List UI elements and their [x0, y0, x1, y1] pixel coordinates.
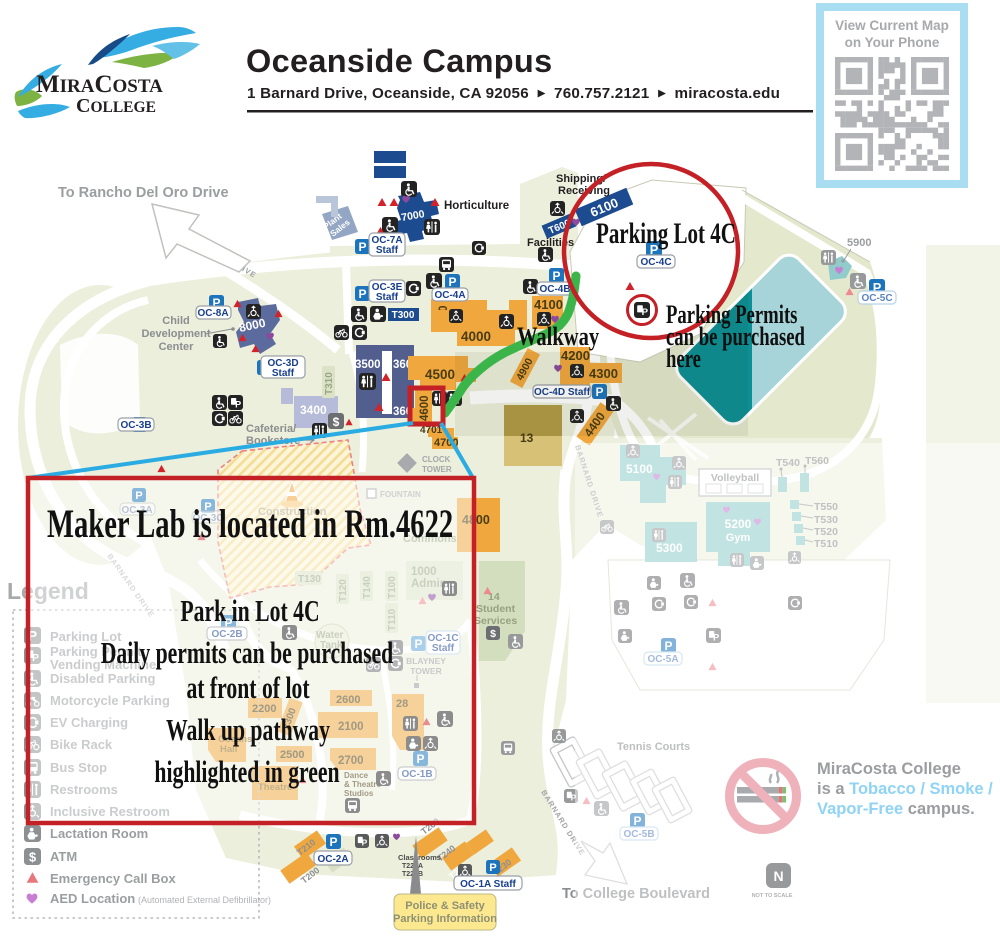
svg-text:5900: 5900 [847, 237, 871, 249]
svg-text:Emergency Call Box: Emergency Call Box [50, 871, 176, 886]
svg-text:(Automated External Defibrilla: (Automated External Defibrillator) [138, 895, 271, 905]
svg-text:OC-5C: OC-5C [861, 293, 892, 304]
svg-text:To Rancho Del Oro Drive: To Rancho Del Oro Drive [58, 185, 229, 201]
svg-text:Park in Lot 4C: Park in Lot 4C [180, 593, 319, 628]
svg-text:3400: 3400 [300, 403, 327, 417]
svg-text:3500: 3500 [355, 359, 381, 371]
svg-text:at front of lot: at front of lot [186, 670, 309, 705]
svg-text:Classrooms: Classrooms [398, 853, 441, 862]
svg-text:Walk up pathway: Walk up pathway [166, 712, 330, 747]
svg-text:is a Tobacco / Smoke /: is a Tobacco / Smoke / [817, 780, 993, 798]
svg-text:MiraCosta College: MiraCosta College [817, 760, 961, 778]
svg-text:Center: Center [159, 341, 195, 353]
svg-text:Horticulture: Horticulture [444, 200, 509, 212]
svg-text:Cafeteria/: Cafeteria/ [246, 423, 296, 435]
svg-text:COLLEGE: COLLEGE [76, 95, 156, 117]
svg-text:OC-3B: OC-3B [120, 420, 151, 431]
svg-text:here: here [666, 344, 701, 373]
svg-text:OC-2A: OC-2A [317, 854, 348, 865]
svg-text:Staff: Staff [376, 245, 399, 256]
svg-text:4701: 4701 [420, 425, 443, 436]
svg-text:Police & Safety: Police & Safety [405, 900, 485, 912]
svg-text:Oceanside Campus: Oceanside Campus [246, 43, 552, 79]
svg-text:T310: T310 [324, 372, 335, 395]
svg-text:4500: 4500 [425, 367, 455, 382]
svg-text:4000: 4000 [461, 329, 491, 344]
svg-text:CLOCK: CLOCK [422, 455, 451, 464]
svg-text:OC-4A: OC-4A [434, 290, 465, 301]
svg-text:Staff: Staff [376, 292, 399, 303]
svg-text:N: N [773, 868, 783, 884]
svg-text:T300: T300 [392, 310, 415, 321]
svg-text:Walkway: Walkway [517, 323, 599, 352]
svg-text:Staff: Staff [272, 368, 295, 379]
svg-text:TOWER: TOWER [422, 465, 452, 474]
svg-text:View Current Map: View Current Map [835, 18, 949, 33]
svg-text:Development: Development [141, 328, 210, 340]
svg-text:1 Barnard Drive, Oceanside, CA: 1 Barnard Drive, Oceanside, CA 92056 ▶ 7… [247, 85, 780, 102]
svg-text:ATM: ATM [50, 849, 77, 864]
svg-text:Services: Services [474, 615, 517, 627]
svg-text:NOT TO SCALE: NOT TO SCALE [752, 893, 793, 899]
svg-text:4600: 4600 [419, 395, 431, 421]
svg-text:OC-8A: OC-8A [197, 308, 228, 319]
svg-text:Vapor-Free campus.: Vapor-Free campus. [817, 800, 975, 818]
svg-text:OC-1A Staff: OC-1A Staff [460, 879, 516, 890]
svg-text:Child: Child [162, 315, 190, 327]
svg-text:4100: 4100 [534, 297, 563, 312]
svg-text:MIRACOSTA: MIRACOSTA [36, 71, 163, 98]
svg-text:Daily permits can be purchased: Daily permits can be purchased [101, 635, 394, 670]
svg-text:OC-4B: OC-4B [539, 284, 570, 295]
svg-text:T220A: T220A [402, 863, 423, 870]
svg-text:Maker Lab is located in Rm.462: Maker Lab is located in Rm.4622 [47, 501, 453, 546]
svg-text:Parking Lot 4C: Parking Lot 4C [596, 216, 736, 250]
svg-text:OC-4C: OC-4C [640, 257, 671, 268]
svg-text:AED Location: AED Location [50, 891, 135, 906]
svg-text:Student: Student [476, 603, 516, 615]
svg-text:highlighted in green: highlighted in green [154, 754, 339, 789]
svg-text:Parking Information: Parking Information [393, 913, 497, 925]
svg-text:on Your Phone: on Your Phone [845, 35, 940, 50]
svg-text:Lactation Room: Lactation Room [50, 826, 148, 841]
